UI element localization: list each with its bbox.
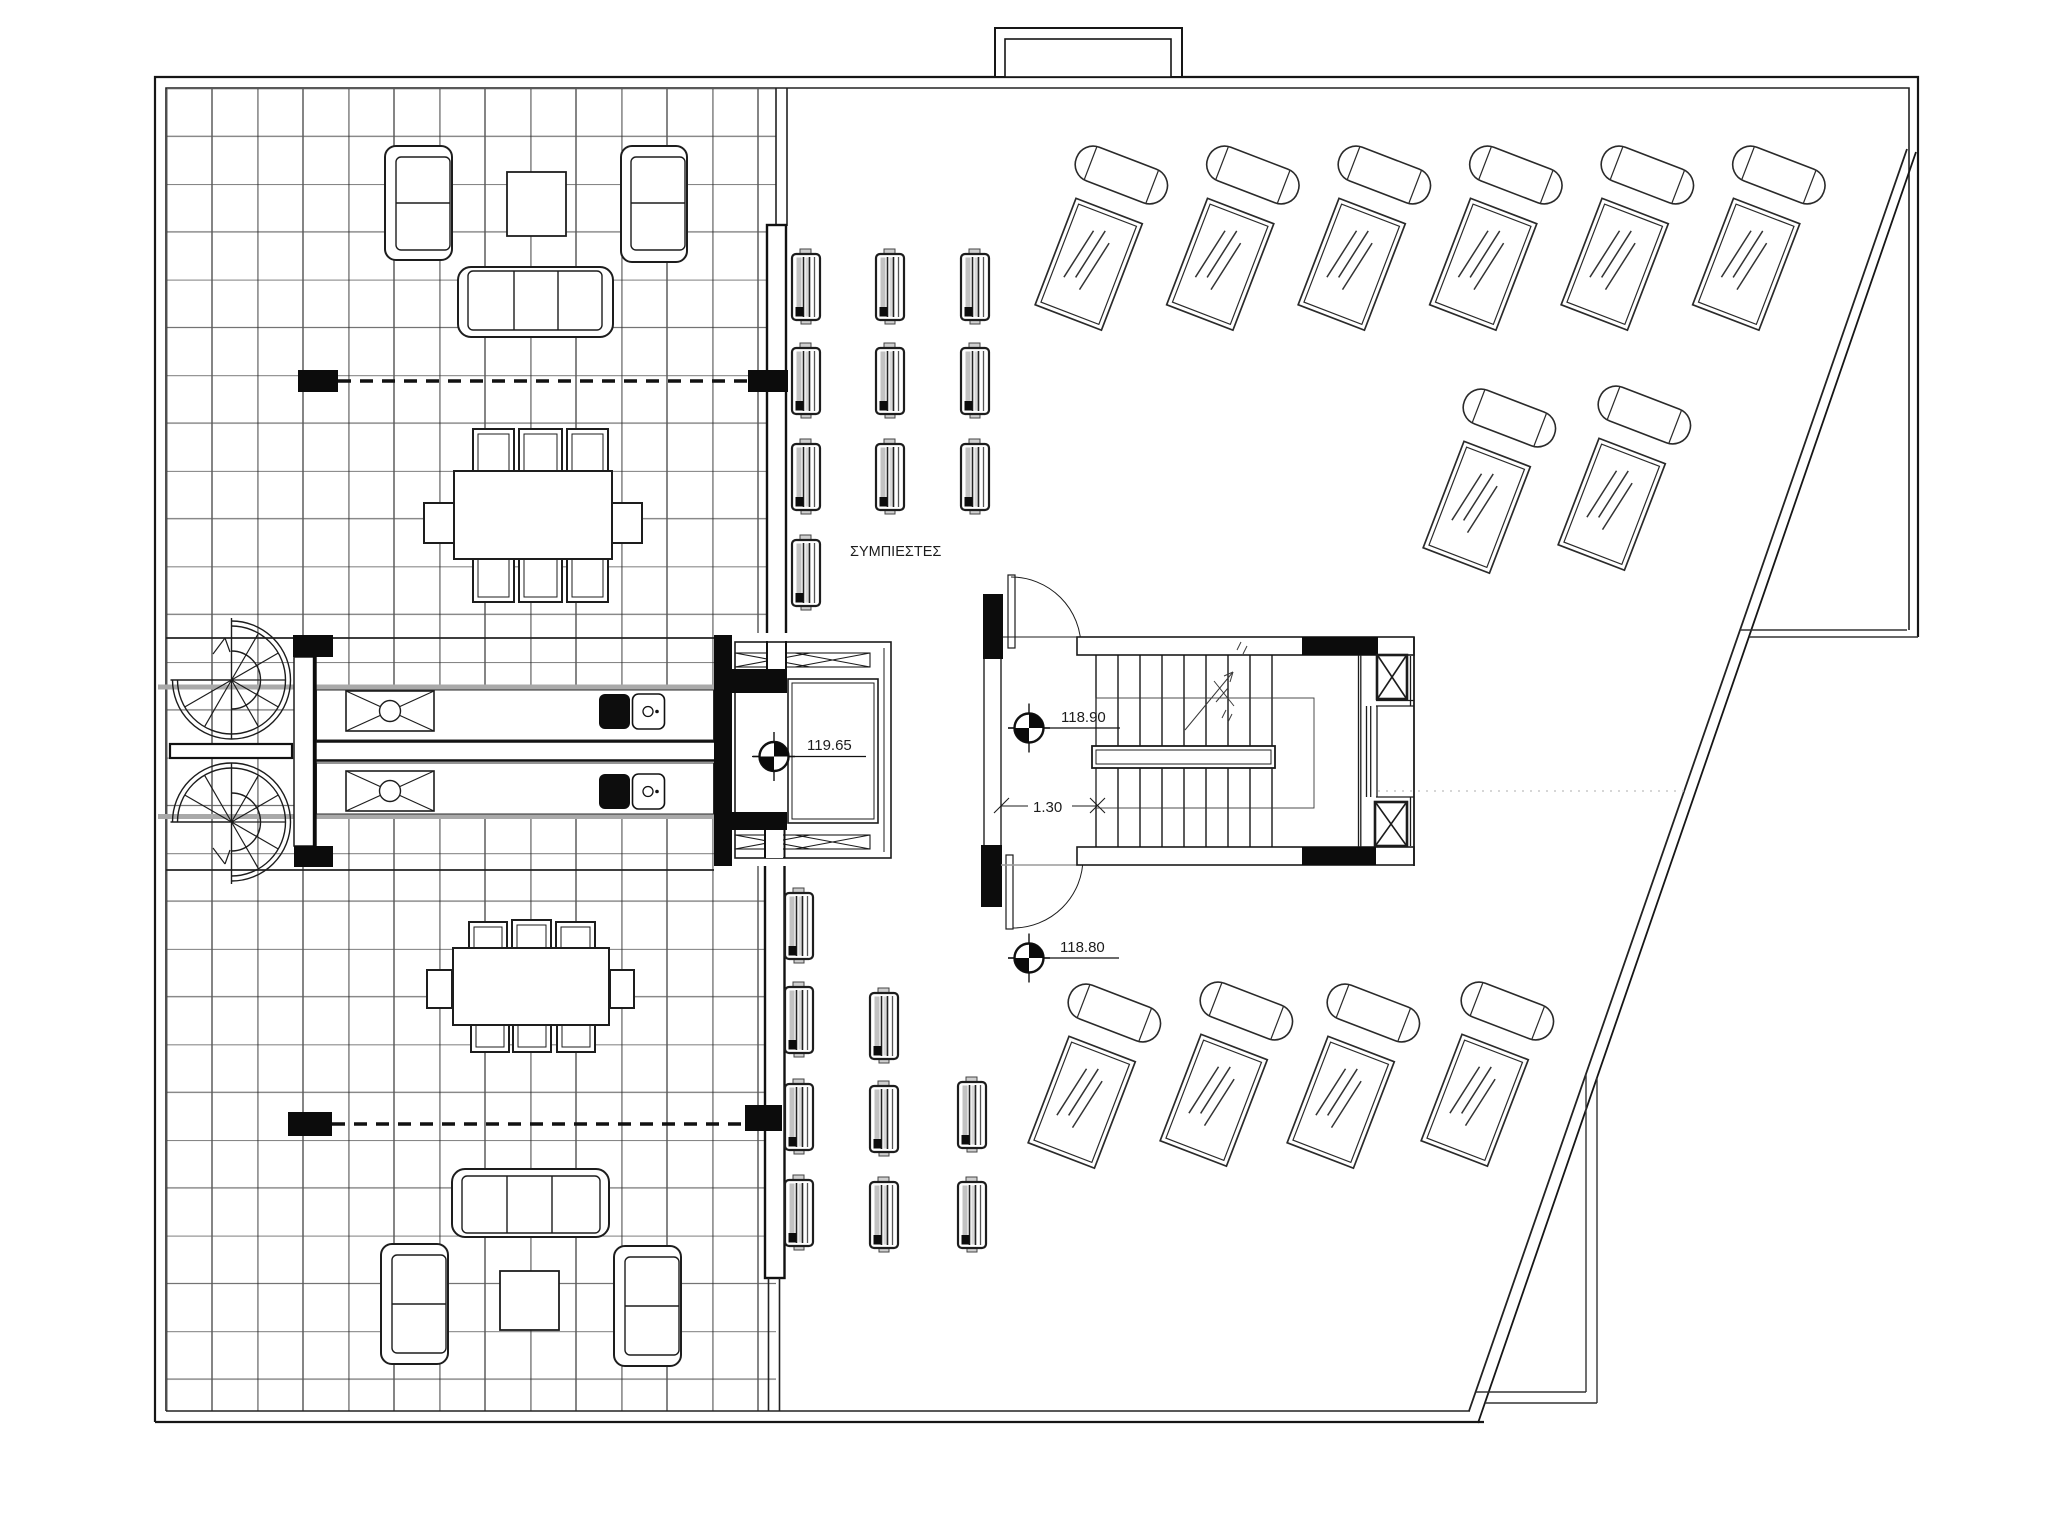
- svg-text:1.30: 1.30: [1033, 799, 1062, 816]
- svg-text:118.80: 118.80: [1060, 939, 1105, 956]
- svg-text:119.65: 119.65: [807, 737, 852, 754]
- svg-text:118.90: 118.90: [1061, 709, 1106, 726]
- svg-text:ΣΥΜΠΙΕΣΤΕΣ: ΣΥΜΠΙΕΣΤΕΣ: [850, 544, 941, 560]
